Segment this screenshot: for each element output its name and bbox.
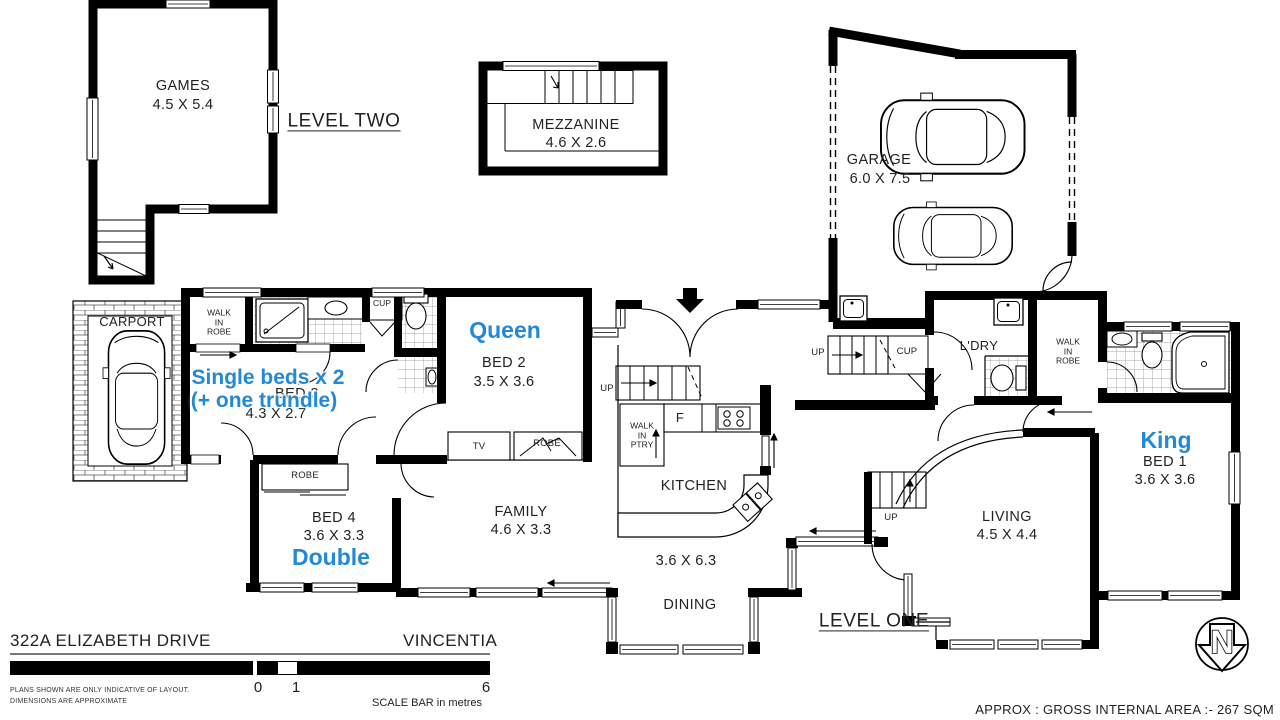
toilet-laundry bbox=[991, 365, 1026, 391]
laundry-sink bbox=[994, 298, 1023, 325]
ensuite-vanity bbox=[1107, 331, 1137, 347]
kitchen-counter bbox=[664, 404, 762, 432]
mezzanine-room bbox=[483, 62, 663, 172]
toilet-1 bbox=[404, 294, 428, 329]
garage-car-2 bbox=[894, 202, 1012, 270]
disclaimer: PLANS SHOWN ARE ONLY INDICATIVE OF LAYOU… bbox=[10, 686, 189, 707]
disclaimer-line1: PLANS SHOWN ARE ONLY INDICATIVE OF LAYOU… bbox=[10, 687, 189, 694]
scale-one-label: 1 bbox=[292, 679, 300, 696]
master-suite bbox=[1028, 291, 1240, 649]
living-room bbox=[864, 401, 1099, 649]
corner-bath bbox=[1172, 332, 1229, 393]
north-arrow: N bbox=[1196, 618, 1248, 671]
scale-zero-label: 0 bbox=[254, 679, 262, 696]
floorplan-drawing: N bbox=[0, 0, 1280, 720]
address-label: 322A ELIZABETH DRIVE bbox=[10, 631, 211, 651]
robe-queen-cabinet bbox=[514, 432, 582, 460]
floorplan-page: N GAMES 4.5 X 5.4 LEVEL TWO MEZZANINE 4.… bbox=[0, 0, 1280, 720]
laundry-room bbox=[925, 291, 1037, 441]
entry bbox=[583, 288, 833, 357]
footer-divider bbox=[10, 653, 490, 655]
bathroom-vanity bbox=[308, 297, 364, 319]
scale-caption: SCALE BAR in metres bbox=[372, 697, 482, 709]
carport-structure bbox=[73, 301, 187, 481]
toilet-ensuite bbox=[1142, 333, 1162, 368]
walk-in-pantry bbox=[620, 404, 664, 466]
entry-arrow-icon bbox=[676, 288, 704, 313]
disclaimer-line2: DIMENSIONS ARE APPROXIMATE bbox=[10, 698, 127, 705]
left-wing bbox=[181, 288, 447, 464]
bed4-room bbox=[246, 460, 434, 592]
scale-bar-segment bbox=[277, 661, 298, 675]
scale-bar-notch bbox=[253, 661, 257, 675]
scale-bar bbox=[10, 661, 490, 675]
garage-car-1 bbox=[881, 93, 1025, 181]
kitchen-stairs bbox=[616, 366, 702, 400]
carport-car bbox=[103, 331, 170, 464]
north-letter: N bbox=[1210, 624, 1233, 660]
shower bbox=[256, 299, 308, 342]
scale-six-label: 6 bbox=[482, 679, 490, 696]
gross-area-note: APPROX : GROSS INTERNAL AREA :- 267 SQM bbox=[975, 702, 1274, 717]
hall-stairs-cup bbox=[828, 336, 941, 392]
robe-bed4-cabinet bbox=[262, 464, 348, 495]
laundry-tub-garage bbox=[840, 296, 867, 321]
games-room bbox=[87, 0, 279, 280]
suburb-label: VINCENTIA bbox=[403, 631, 497, 651]
tv-cabinet bbox=[448, 432, 510, 460]
powder-basin bbox=[426, 368, 438, 386]
garage-room bbox=[829, 30, 1077, 329]
